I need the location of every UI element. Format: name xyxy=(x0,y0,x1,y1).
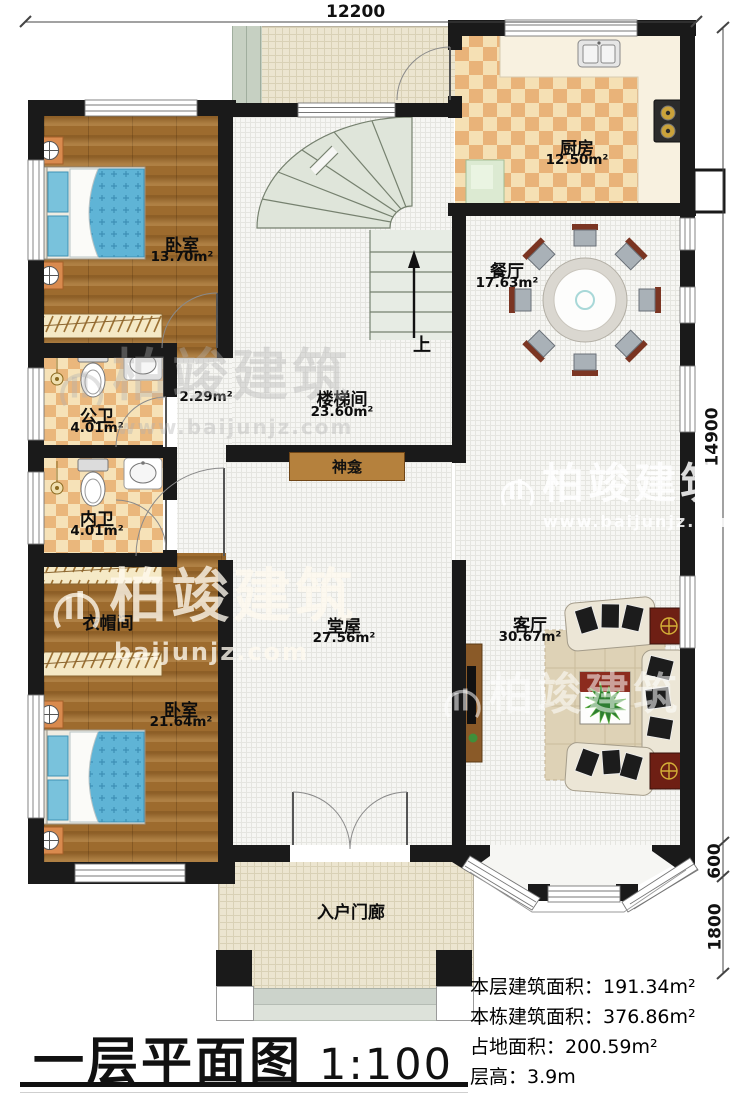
bedroom2-area: 21.64m² xyxy=(150,714,213,730)
dimension-right-mid: 600 xyxy=(705,843,725,879)
door-private-bath xyxy=(116,500,177,550)
toilet-private xyxy=(78,459,108,506)
sofa-bottom xyxy=(564,742,655,796)
staircase xyxy=(257,117,452,340)
floorplan-svg xyxy=(0,0,750,1110)
cloakroom-label: 衣帽间 xyxy=(83,609,134,634)
stat-floor-height: 层高：3.9m xyxy=(470,1062,696,1092)
living-area: 30.67m² xyxy=(499,629,562,645)
dimension-top: 12200 xyxy=(326,2,385,22)
porch-label: 入户门廊 xyxy=(317,898,385,923)
stat-footprint: 占地面积：200.59m² xyxy=(470,1032,696,1062)
door-public-bath xyxy=(116,397,177,447)
dimension-right-low: 1800 xyxy=(706,903,726,950)
door-kitchen xyxy=(397,47,450,100)
door-bedroom1 xyxy=(162,293,217,348)
dining-area: 17.63m² xyxy=(476,275,539,291)
door-hall-double xyxy=(290,792,410,862)
title-underline xyxy=(20,1082,468,1087)
floorplan-canvas: 卧室 13.70m² 厨房 12.50m² 餐厅 17.63m² 楼梯间 23.… xyxy=(0,0,750,1110)
title-underline-light xyxy=(20,1092,468,1093)
kitchen-area: 12.50m² xyxy=(546,152,609,168)
tv-cabinet xyxy=(464,644,482,762)
stove xyxy=(654,100,682,142)
stat-floor-area: 本层建筑面积：191.34m² xyxy=(470,972,696,1002)
public-bath-area: 4.01m² xyxy=(70,420,123,436)
stairwell-area: 23.60m² xyxy=(311,404,374,420)
bed2 xyxy=(37,730,145,824)
hall-area: 27.56m² xyxy=(313,630,376,646)
shrine-label: 神龛 xyxy=(332,456,362,477)
stairs-up-label: 上 xyxy=(413,331,431,357)
kitchen-sink xyxy=(578,40,620,67)
bedroom1-area: 13.70m² xyxy=(151,249,214,265)
dimension-right-main: 14900 xyxy=(703,407,723,466)
wardrobe-cloak-bottom xyxy=(38,652,162,676)
bed1 xyxy=(37,167,145,259)
shrine-shelf: 神龛 xyxy=(289,452,405,481)
wall-niche xyxy=(694,170,724,212)
building-stats: 本层建筑面积：191.34m² 本栋建筑面积：376.86m² 占地面积：200… xyxy=(470,972,696,1092)
lamp-private xyxy=(51,461,63,494)
sink-private xyxy=(124,458,162,489)
sofa-top xyxy=(564,596,658,652)
corridor-area: 2.29m² xyxy=(179,389,232,405)
kitchen-cabinet xyxy=(466,160,504,206)
private-bath-area: 4.01m² xyxy=(70,523,123,539)
stat-total-area: 本栋建筑面积：376.86m² xyxy=(470,1002,696,1032)
dining-table xyxy=(543,258,627,342)
bay-window-center xyxy=(548,886,620,902)
wardrobe-bedroom1 xyxy=(38,314,162,338)
coffee-table xyxy=(580,672,630,724)
